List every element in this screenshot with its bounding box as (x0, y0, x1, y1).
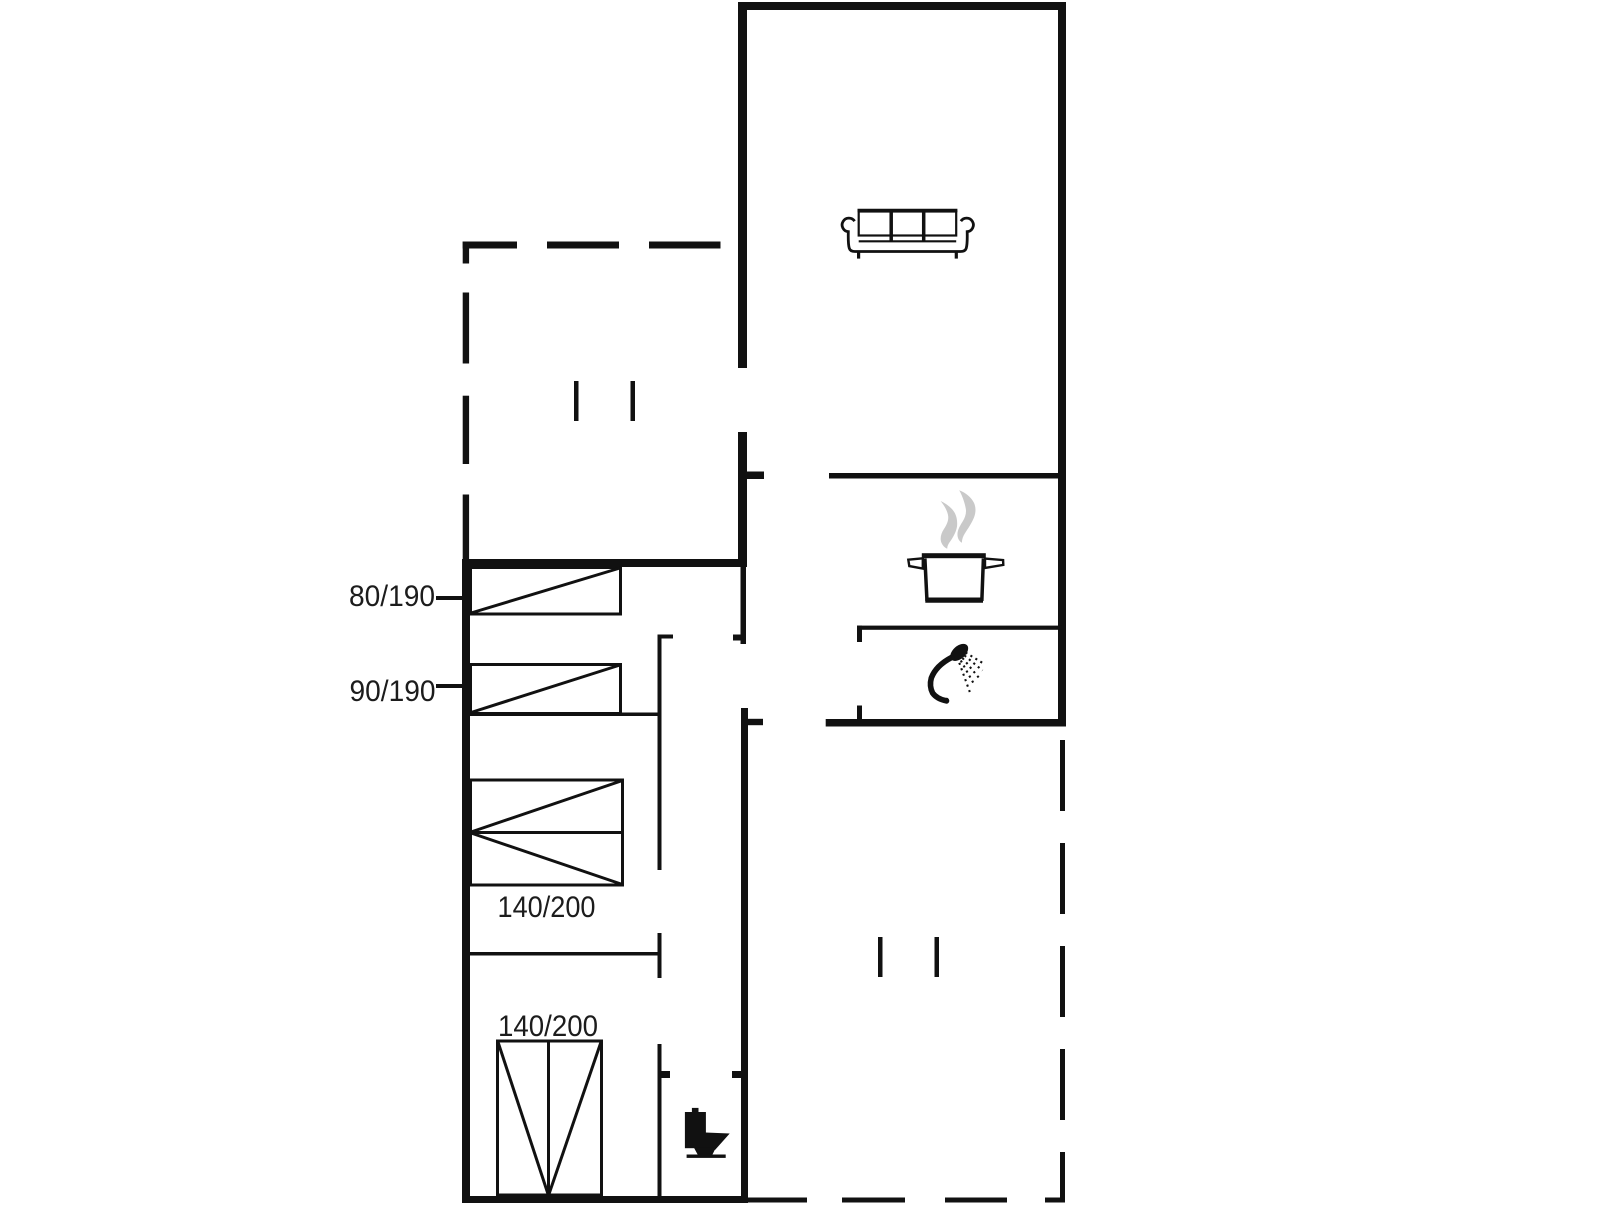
svg-text:80/190: 80/190 (349, 580, 435, 613)
svg-text:90/190: 90/190 (350, 675, 436, 708)
svg-text:140/200: 140/200 (498, 891, 596, 924)
svg-text:140/200: 140/200 (498, 1010, 598, 1043)
